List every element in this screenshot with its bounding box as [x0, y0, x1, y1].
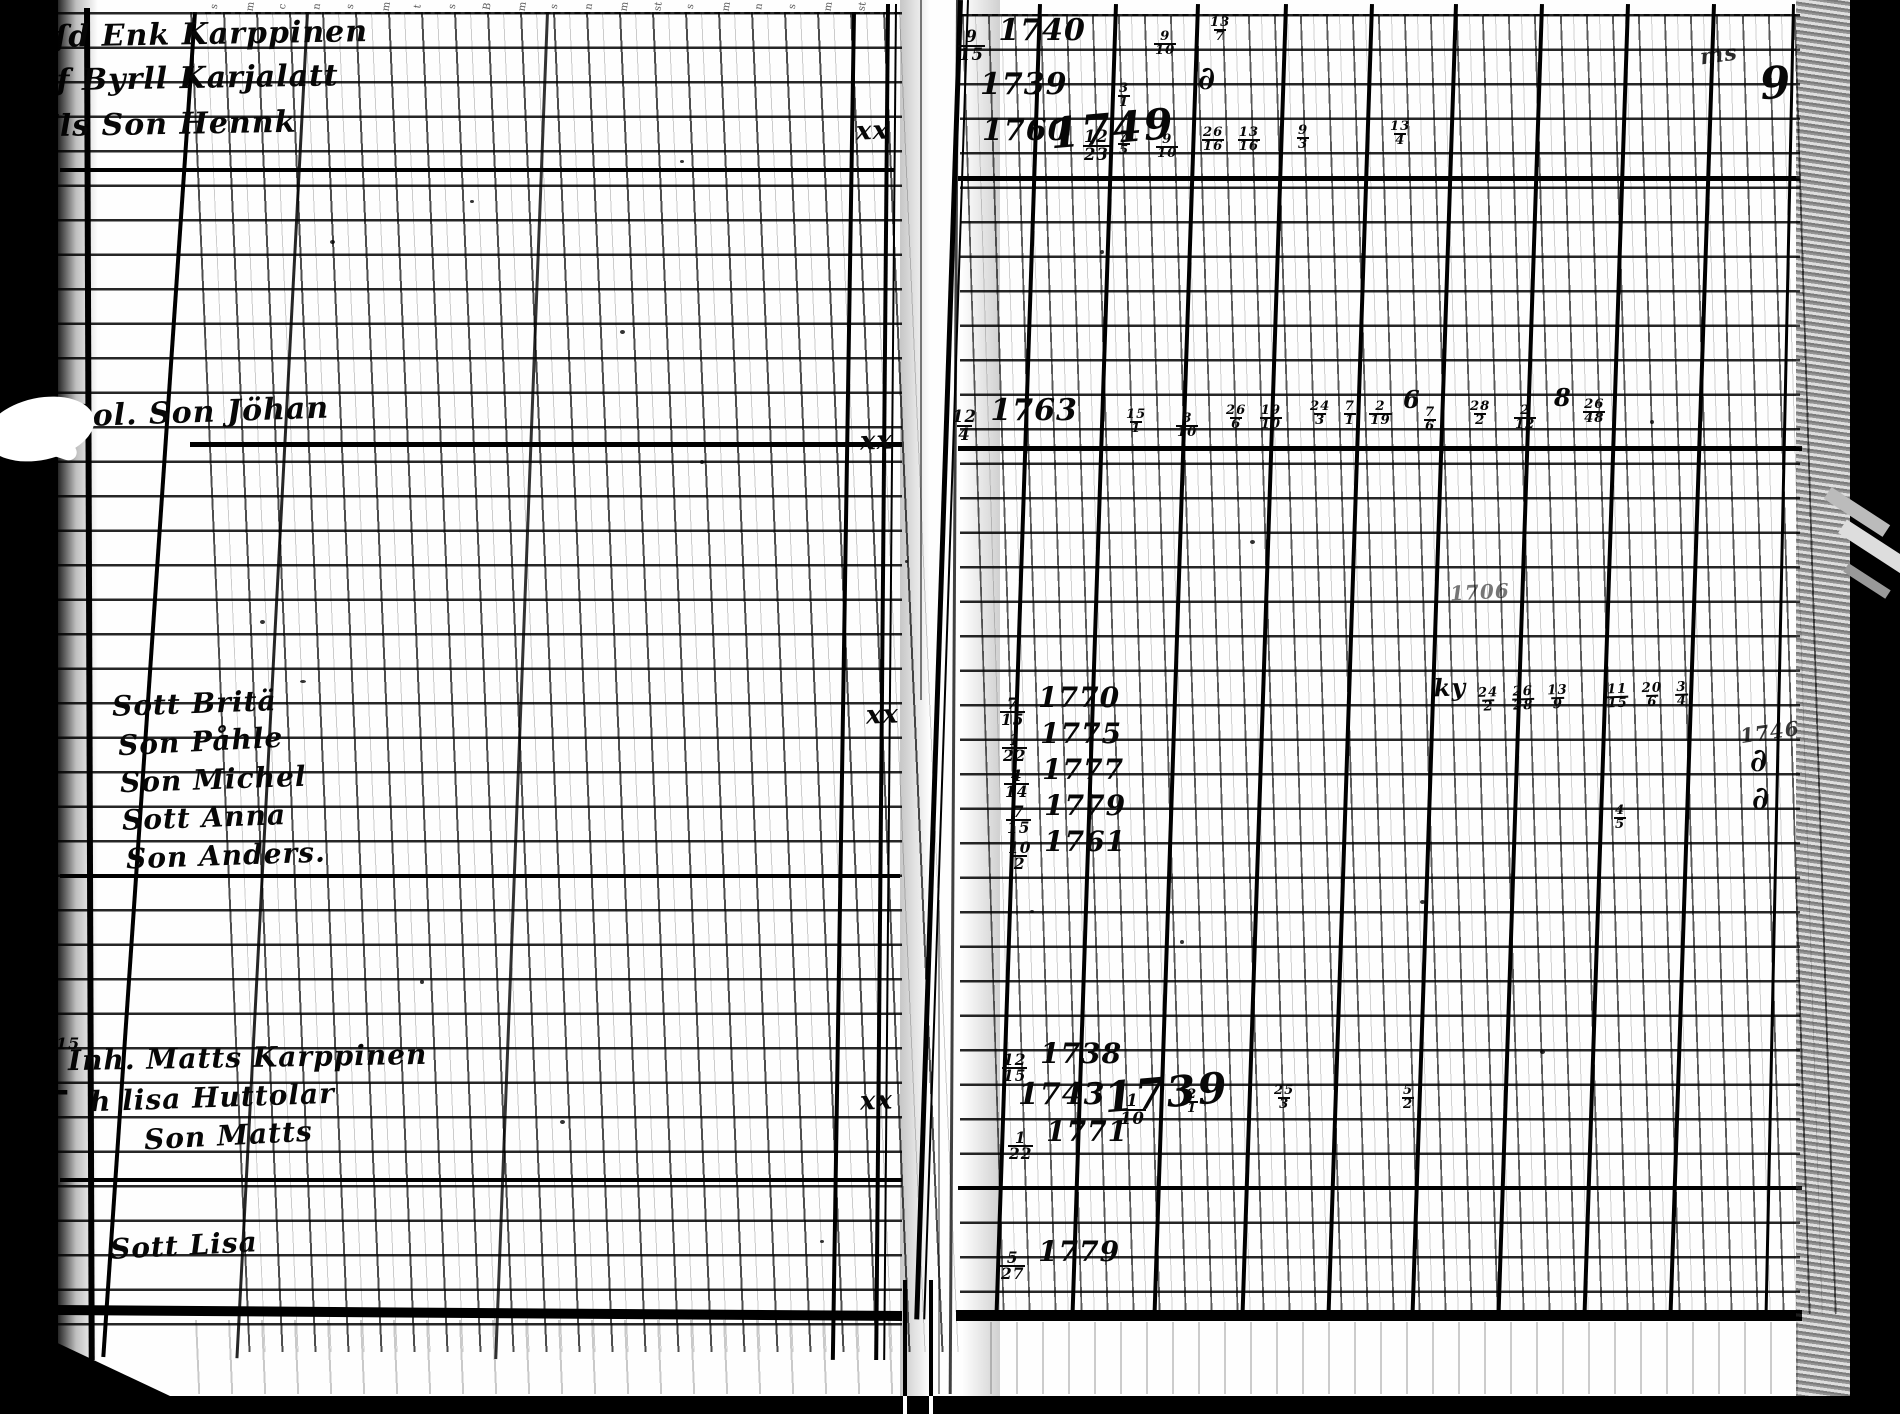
date-1740: 915 1740 — [956, 16, 1086, 62]
note-ky: ky 242 2628 139 — [1433, 672, 1570, 716]
ink-speck — [1030, 910, 1034, 913]
frac-r1-a: 910 — [1152, 18, 1178, 57]
fraction: 242 — [1478, 687, 1499, 714]
name-sott-anna: Sott Anna — [122, 801, 287, 835]
edge-curl-1: ∂ — [1750, 744, 1768, 776]
ink-text: xx — [859, 1085, 893, 1116]
frac-r1-b: 137 — [1208, 4, 1232, 43]
ink-speck — [680, 160, 684, 163]
ink-text: 1771 — [1035, 1115, 1128, 1148]
ink-text: 1775 — [1029, 717, 1122, 750]
ink-speck — [905, 560, 908, 563]
scan-right-black-edge — [1850, 0, 1900, 1414]
ink-text: Sott Britä — [111, 684, 277, 723]
ink-text: xx — [855, 115, 889, 146]
ink-text: 1779 — [1027, 1235, 1120, 1268]
printed-column-header-glyph: st — [856, 1, 868, 12]
frac-r4-d: 243 71 219 6 — [1308, 388, 1421, 427]
scan-bottom-black-edge — [0, 1396, 1900, 1414]
ink-text: ∂ — [1750, 741, 1768, 779]
ink-text: Son Anders. — [125, 836, 326, 876]
note-cluster2: 1115 206 34 — [1603, 669, 1690, 711]
name-son-anders: Son Anders. — [126, 839, 327, 874]
ink-speck — [1250, 540, 1255, 544]
ink-text: 1706 — [1449, 578, 1510, 605]
ink-text: 1777 — [1031, 753, 1124, 786]
fraction: 910 — [1154, 31, 1176, 57]
ink-text: 1739 — [980, 67, 1068, 102]
ink-layer: yſd Enk KarppinenYf Byrll KarjalattEls S… — [0, 0, 1900, 1414]
name-lisa-huttolar: h lisa Huttolar — [90, 1080, 336, 1117]
frac-r3-d: 93 — [1295, 112, 1311, 151]
ink-text: ms — [1698, 40, 1739, 71]
fraction: 910 — [1156, 134, 1178, 160]
frac-r3-e: 134 — [1388, 108, 1412, 147]
frac-r4-g: 212 — [1512, 392, 1538, 431]
fraction: 134 — [1390, 121, 1410, 147]
xx-mark-2: xx — [860, 427, 894, 454]
name-son-johan: Sol. Son Jöhan — [70, 393, 330, 432]
fraction: 527 — [1000, 1251, 1025, 1281]
scanned-ledger-page: yſd Enk KarppinenYf Byrll KarjalattEls S… — [0, 0, 1900, 1414]
frac-r2-a: 31 — [1116, 70, 1132, 109]
ink-text: xx — [859, 425, 893, 456]
fraction: 75 — [1118, 131, 1130, 157]
ink-speck — [470, 200, 474, 203]
ink-speck — [260, 620, 265, 624]
ink-text: 8 — [1554, 383, 1581, 412]
frac-r4-e: 76 — [1422, 394, 1438, 433]
ink-text: xx — [865, 699, 899, 730]
name-matts-karppinen: Inh. Matts Karppinen — [68, 1041, 428, 1075]
ink-speck — [1180, 940, 1184, 944]
frac-r4-c: 266 1910 — [1224, 392, 1284, 431]
name-son-michel: Son Michel — [120, 763, 307, 797]
frac-b3: 52 — [1400, 1072, 1416, 1111]
printed-column-header-glyph: m — [619, 1, 631, 12]
printed-column-header-glyph: m — [721, 1, 733, 12]
ink-text — [1226, 111, 1235, 140]
printed-column-header-glyph: m — [245, 1, 257, 12]
name-sott-brita: Sott Britä — [112, 687, 278, 721]
fraction: 212 — [1514, 405, 1536, 431]
edge-squiggle: ms — [1699, 41, 1739, 68]
fraction: 2616 — [1202, 127, 1224, 153]
date-1763: 124 1763 — [950, 396, 1078, 442]
date-1779-b: 527 1779 — [998, 1238, 1120, 1282]
fraction: 243 — [1310, 401, 1330, 427]
ink-speck — [1540, 1050, 1545, 1054]
ink-text — [1663, 666, 1673, 695]
ink-text: 1739 — [1102, 1063, 1231, 1123]
edge-curl-2: ∂ — [1752, 782, 1770, 814]
frac-b2: 253 — [1272, 1072, 1296, 1111]
frac-r4-b: 810 — [1174, 400, 1200, 439]
ink-text — [1500, 671, 1510, 700]
printed-column-header-glyph: st — [652, 1, 664, 12]
ink-speck — [300, 680, 306, 683]
ink-text: 1763 — [979, 393, 1078, 428]
fraction: 1316 — [1238, 127, 1260, 153]
ink-speck — [1100, 250, 1104, 254]
printed-column-header-glyph: m — [823, 1, 835, 12]
date-1771: 122 1771 — [1006, 1118, 1128, 1162]
ribbon-light-1 — [903, 1396, 907, 1414]
frac-r4-h: 8 2648 — [1554, 386, 1607, 425]
note-1746: 1746 — [1739, 718, 1801, 746]
fraction: 206 — [1641, 682, 1662, 709]
note-1706: 1706 — [1450, 580, 1511, 603]
name-son-pahle: Son Påhle — [117, 724, 284, 761]
ink-text: 1779 — [1033, 789, 1126, 822]
fraction: 266 — [1226, 405, 1246, 431]
fraction: 93 — [1297, 125, 1309, 151]
ink-text — [1535, 669, 1545, 698]
frac-r3-a: 75 — [1116, 118, 1132, 157]
ink-text: Son Påhle — [117, 721, 284, 763]
fraction: 52 — [1402, 1085, 1414, 1111]
ink-text: Sott Anna — [121, 798, 286, 837]
frac-b1: 21 — [1184, 1076, 1200, 1115]
fraction: 71 — [1344, 401, 1356, 427]
fraction: 1910 — [1260, 405, 1282, 431]
ink-text — [1332, 385, 1341, 414]
name-son-matts: Son Matts — [143, 1118, 313, 1155]
fraction: 102 — [1008, 841, 1031, 871]
name-sott-lisa: Sott Lisa — [109, 1228, 258, 1264]
printed-column-header-glyph: m — [381, 1, 393, 12]
ink-text — [1358, 385, 1367, 414]
ink-speck — [1420, 900, 1425, 904]
ink-speck — [420, 980, 424, 984]
frac-r4-a: 151 — [1124, 396, 1148, 435]
ink-text — [1248, 389, 1257, 418]
ink-speck — [620, 330, 625, 334]
fraction: 810 — [1176, 413, 1198, 439]
ink-text: 1746 — [1739, 716, 1801, 748]
curl-r2: ∂ — [1198, 62, 1216, 94]
fraction: 2628 — [1511, 686, 1534, 713]
fraction: 151 — [1126, 409, 1146, 435]
ink-text — [1630, 667, 1640, 696]
ink-text: Son Michel — [119, 760, 307, 799]
ink-text: Son Matts — [143, 1115, 313, 1157]
fraction: 139 — [1547, 685, 1568, 712]
xx-mark-4: xx — [860, 1087, 894, 1114]
ink-text: 1740 — [987, 13, 1086, 48]
ink-text: ky — [1433, 672, 1476, 702]
fraction: 253 — [1274, 1085, 1294, 1111]
fraction: 915 — [958, 29, 985, 61]
fraction: 122 — [1008, 1131, 1033, 1161]
ribbon-light-2 — [929, 1396, 933, 1414]
ink-text: ∂ — [1752, 779, 1770, 817]
fraction: 282 — [1470, 401, 1490, 427]
xx-mark-3: xx — [866, 701, 900, 728]
xx-mark-1: xx — [856, 117, 890, 144]
fraction: 45 — [1614, 805, 1626, 831]
scan-left-black-edge — [0, 0, 58, 1414]
fraction: 219 — [1369, 401, 1391, 427]
frac-45: 45 — [1612, 792, 1628, 831]
ink-text: ∂ — [1198, 59, 1216, 97]
edge-nine: 9 — [1758, 61, 1793, 108]
ink-text: 1761 — [1033, 825, 1126, 858]
ink-text: h lisa Huttolar — [89, 1077, 335, 1119]
fraction: 137 — [1210, 17, 1230, 43]
scan-left-ragged-shade — [58, 0, 98, 1414]
fraction: 76 — [1424, 407, 1436, 433]
fraction: 34 — [1675, 682, 1688, 709]
ink-speck — [560, 1120, 565, 1124]
fraction: 31 — [1118, 83, 1130, 109]
fraction: 1115 — [1606, 684, 1629, 711]
fraction: 124 — [952, 409, 977, 441]
ink-text: 1770 — [1027, 681, 1120, 714]
ink-speck — [1650, 420, 1654, 424]
ink-text: 1738 — [1029, 1037, 1122, 1070]
page-edge-noise-right — [1796, 0, 1852, 1396]
ink-speck — [820, 1240, 824, 1243]
ink-text: Inh. Matts Karppinen — [68, 1038, 428, 1077]
ink-text: Sol. Son Jöhan — [69, 390, 329, 434]
ink-text: 6 — [1394, 385, 1421, 414]
frac-r4-f: 282 — [1468, 388, 1492, 427]
ink-text: Sott Lisa — [109, 1225, 258, 1266]
date-1739: 1739 — [980, 70, 1068, 100]
frac-r3-c: 2616 1316 — [1200, 114, 1262, 153]
ink-speck — [330, 240, 335, 244]
date-1739-big: 1739 — [1102, 1067, 1230, 1120]
date-1761: 102 1761 — [1006, 828, 1126, 872]
fraction: 21 — [1186, 1089, 1198, 1115]
fraction: 2648 — [1583, 399, 1605, 425]
printed-column-header-glyph: m — [517, 1, 529, 12]
ink-text: 9 — [1758, 57, 1794, 111]
frac-r3-b: 910 — [1154, 121, 1180, 160]
ink-speck — [700, 460, 704, 464]
